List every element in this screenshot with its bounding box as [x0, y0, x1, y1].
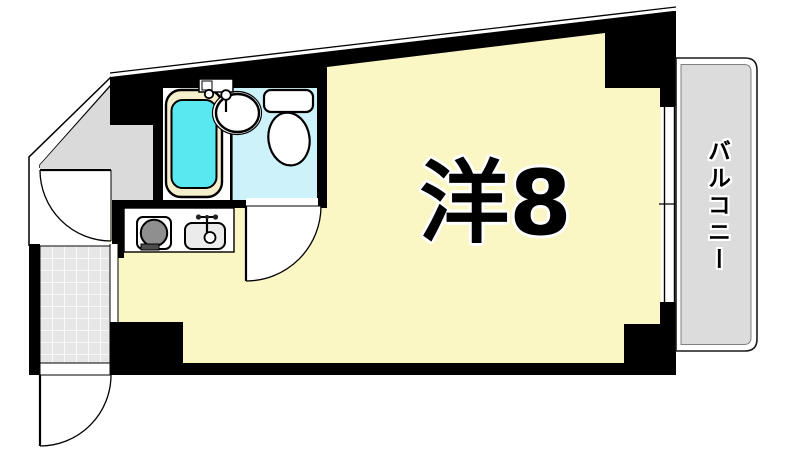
floorplan: 洋8 バルコニー — [0, 0, 789, 468]
sink-faucet-head — [205, 232, 216, 243]
entrance-tiles — [40, 246, 110, 364]
wall-bottom — [110, 363, 662, 375]
wall-pillar-bottom-right — [624, 324, 676, 375]
wall-genkan-left — [29, 244, 40, 375]
stove-burner — [141, 220, 167, 246]
stove-handle — [141, 244, 159, 250]
floorplan-drawing — [0, 0, 789, 468]
wall-bath-right — [317, 84, 327, 202]
wall-below-window — [660, 302, 676, 328]
wall-hall-bath-lower — [153, 125, 163, 202]
main-room-label: 洋8 — [398, 150, 593, 258]
balcony-label: バルコニー — [678, 62, 754, 350]
entrance-threshold — [40, 363, 110, 375]
kitchen-counter — [124, 208, 234, 252]
bath-doorway — [246, 198, 318, 206]
genkan-threshold-strip — [110, 244, 118, 324]
wall-hall-bath-upper — [110, 82, 163, 125]
wall-bath-bottom — [112, 200, 246, 208]
stove — [137, 217, 171, 250]
hall-door — [37, 168, 111, 246]
washbasin — [213, 92, 262, 135]
